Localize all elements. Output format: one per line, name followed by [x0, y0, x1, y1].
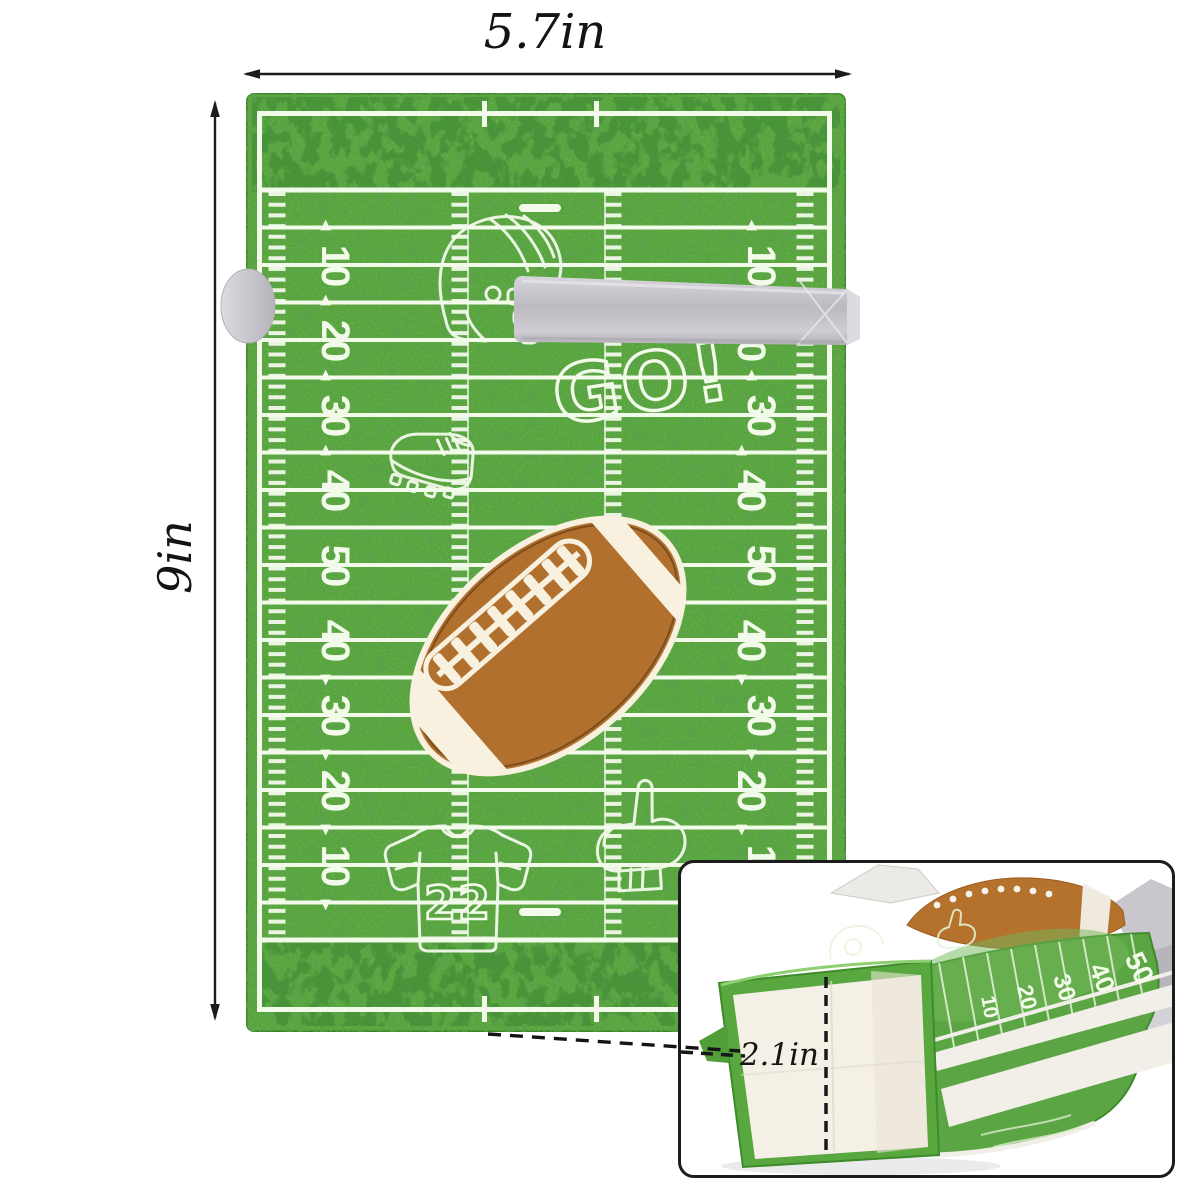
svg-text:10: 10 — [739, 245, 783, 286]
svg-text:10: 10 — [976, 994, 1002, 1020]
svg-text:30: 30 — [313, 695, 357, 736]
svg-text:10: 10 — [313, 245, 357, 286]
svg-text:▶: ▶ — [319, 750, 335, 761]
svg-text:▶: ▶ — [745, 750, 761, 761]
svg-text:◀: ◀ — [319, 445, 335, 456]
svg-text:20: 20 — [729, 770, 773, 811]
depth-inset: 1020304050 2.1in — [678, 860, 1175, 1178]
depth-label: 2.1in — [731, 1037, 819, 1073]
jersey-number: 22 — [424, 876, 492, 930]
svg-text:◀: ◀ — [745, 370, 761, 381]
svg-text:50: 50 — [739, 545, 783, 586]
svg-text:▶: ▶ — [319, 675, 335, 686]
svg-text:20: 20 — [313, 770, 357, 811]
svg-text:▶: ▶ — [735, 675, 751, 686]
svg-text:▶: ▶ — [735, 825, 751, 836]
slot-left-tab — [221, 269, 275, 343]
svg-text:◀: ◀ — [319, 370, 335, 381]
svg-text:50: 50 — [313, 545, 357, 586]
height-label: 9in — [148, 462, 202, 652]
svg-text:◀: ◀ — [319, 295, 335, 306]
svg-text:10: 10 — [313, 845, 357, 886]
svg-text:40: 40 — [729, 620, 773, 661]
height-dimension-arrow — [210, 100, 220, 1021]
svg-text:▶: ▶ — [319, 900, 335, 911]
svg-text:40: 40 — [729, 470, 773, 511]
product-dimension-diagram: 5.7in 9in — [0, 0, 1200, 1200]
svg-text:◀: ◀ — [319, 220, 335, 231]
svg-text:▶: ▶ — [319, 825, 335, 836]
svg-text:20: 20 — [313, 320, 357, 361]
svg-text:30: 30 — [739, 395, 783, 436]
svg-text:◀: ◀ — [745, 220, 761, 231]
svg-text:40: 40 — [313, 470, 357, 511]
svg-text:40: 40 — [313, 620, 357, 661]
svg-text:◀: ◀ — [735, 445, 751, 456]
width-label: 5.7in — [420, 4, 670, 60]
width-dimension-arrow — [243, 69, 852, 79]
svg-text:30: 30 — [313, 395, 357, 436]
svg-text:30: 30 — [739, 695, 783, 736]
